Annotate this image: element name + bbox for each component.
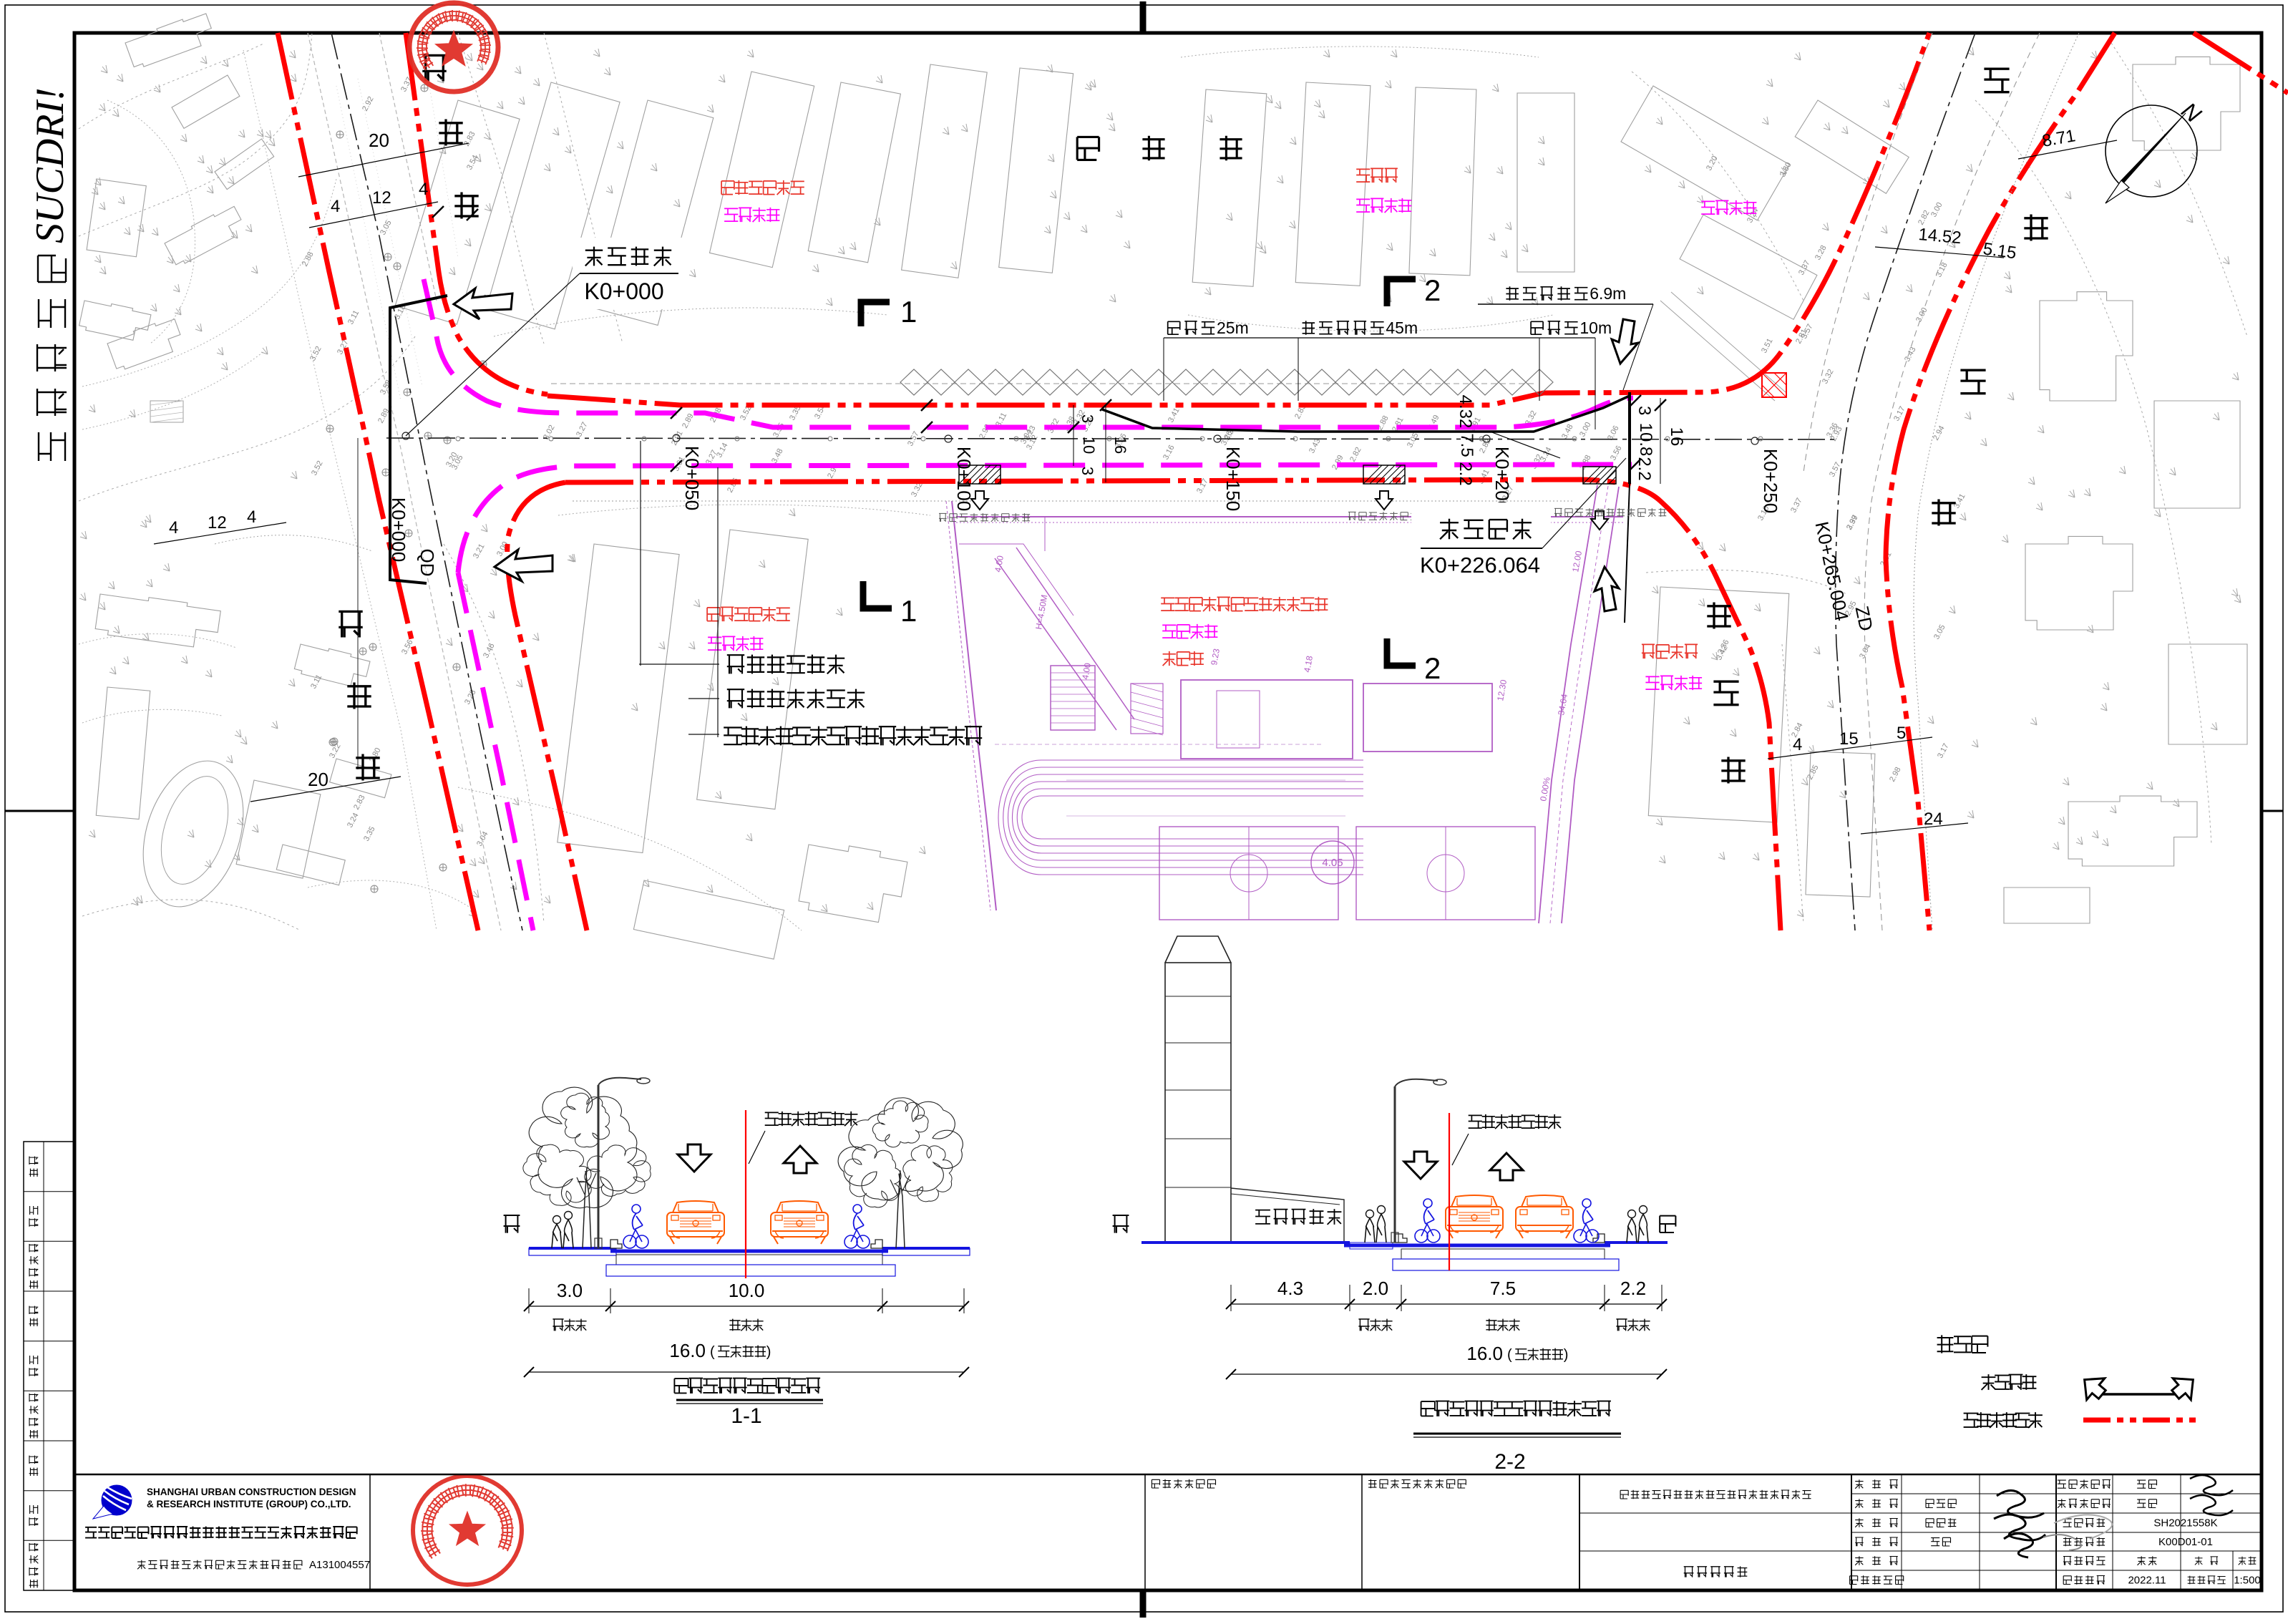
svg-text:16.0: 16.0	[669, 1340, 706, 1361]
svg-text:1:500: 1:500	[2234, 1575, 2261, 1587]
svg-text:45m: 45m	[1386, 319, 1418, 337]
svg-text:& RESEARCH INSTITUTE (GROUP) C: & RESEARCH INSTITUTE (GROUP) CO.,LTD.	[147, 1499, 351, 1509]
svg-text:1: 1	[900, 594, 917, 628]
svg-text:A131004557: A131004557	[309, 1559, 370, 1571]
svg-text:4: 4	[419, 180, 428, 199]
svg-text:(: (	[710, 1344, 715, 1360]
svg-text:7.5: 7.5	[1490, 1278, 1516, 1299]
svg-text:QD: QD	[417, 549, 438, 577]
svg-text:3: 3	[1635, 406, 1654, 415]
svg-text:4: 4	[331, 197, 340, 216]
svg-text:2: 2	[1424, 273, 1441, 307]
svg-text:K0+150: K0+150	[1222, 447, 1244, 511]
svg-text:20: 20	[308, 769, 328, 790]
svg-text:14.52: 14.52	[1917, 225, 1962, 248]
svg-text:K0+226.064: K0+226.064	[1420, 553, 1540, 578]
svg-text:4: 4	[169, 518, 178, 538]
svg-text:12: 12	[208, 513, 227, 533]
svg-text:SH2021558K: SH2021558K	[2153, 1517, 2217, 1530]
svg-text:3.0: 3.0	[557, 1280, 583, 1301]
svg-text:K0+000: K0+000	[584, 278, 663, 304]
svg-text:4: 4	[247, 507, 256, 527]
svg-text:16.0: 16.0	[1466, 1343, 1503, 1364]
svg-text:16: 16	[1667, 427, 1686, 447]
svg-text:2.2: 2.2	[1635, 457, 1654, 480]
svg-text:2.2: 2.2	[1456, 462, 1475, 485]
svg-text:1-1: 1-1	[731, 1404, 761, 1428]
svg-text:4.3: 4.3	[1277, 1278, 1303, 1299]
svg-text:2-2: 2-2	[1494, 1450, 1525, 1474]
svg-text:4.05: 4.05	[1322, 857, 1343, 869]
svg-text:10.8: 10.8	[1636, 423, 1655, 457]
svg-text:K0+200: K0+200	[1491, 447, 1513, 511]
svg-text:15: 15	[1839, 729, 1859, 749]
svg-text:7.5: 7.5	[1457, 433, 1476, 457]
svg-text:4: 4	[1793, 735, 1802, 754]
svg-text:K00D01-01: K00D01-01	[2158, 1536, 2213, 1548]
svg-text:12: 12	[372, 188, 391, 208]
svg-text:24: 24	[1924, 809, 1943, 829]
svg-text:): )	[1564, 1347, 1569, 1363]
svg-text:2.2: 2.2	[1620, 1278, 1646, 1299]
svg-text:2022.11: 2022.11	[2128, 1575, 2166, 1587]
svg-text:10.0: 10.0	[729, 1280, 765, 1301]
svg-text:10: 10	[1080, 437, 1098, 454]
svg-text:3: 3	[1079, 467, 1096, 475]
svg-text:3: 3	[1079, 414, 1096, 423]
svg-text:K0+250: K0+250	[1760, 449, 1781, 513]
svg-text:6.9m: 6.9m	[1590, 284, 1626, 303]
svg-text:SUCDRI!: SUCDRI!	[28, 87, 72, 243]
svg-text:5: 5	[1897, 724, 1906, 743]
svg-text:10m: 10m	[1579, 319, 1612, 337]
svg-text:SHANGHAI URBAN CONSTRUCTION DE: SHANGHAI URBAN CONSTRUCTION DESIGN	[147, 1487, 356, 1497]
svg-text:K0+050: K0+050	[681, 446, 703, 510]
svg-text:25m: 25m	[1217, 319, 1249, 337]
svg-text:1: 1	[900, 295, 917, 329]
svg-text:(: (	[1507, 1347, 1512, 1363]
svg-text:): )	[766, 1344, 771, 1360]
svg-text:16: 16	[1111, 437, 1129, 454]
svg-text:4.32: 4.32	[1456, 395, 1475, 429]
svg-text:2.0: 2.0	[1363, 1278, 1388, 1299]
svg-text:2: 2	[1424, 651, 1441, 685]
svg-text:20: 20	[369, 130, 389, 151]
